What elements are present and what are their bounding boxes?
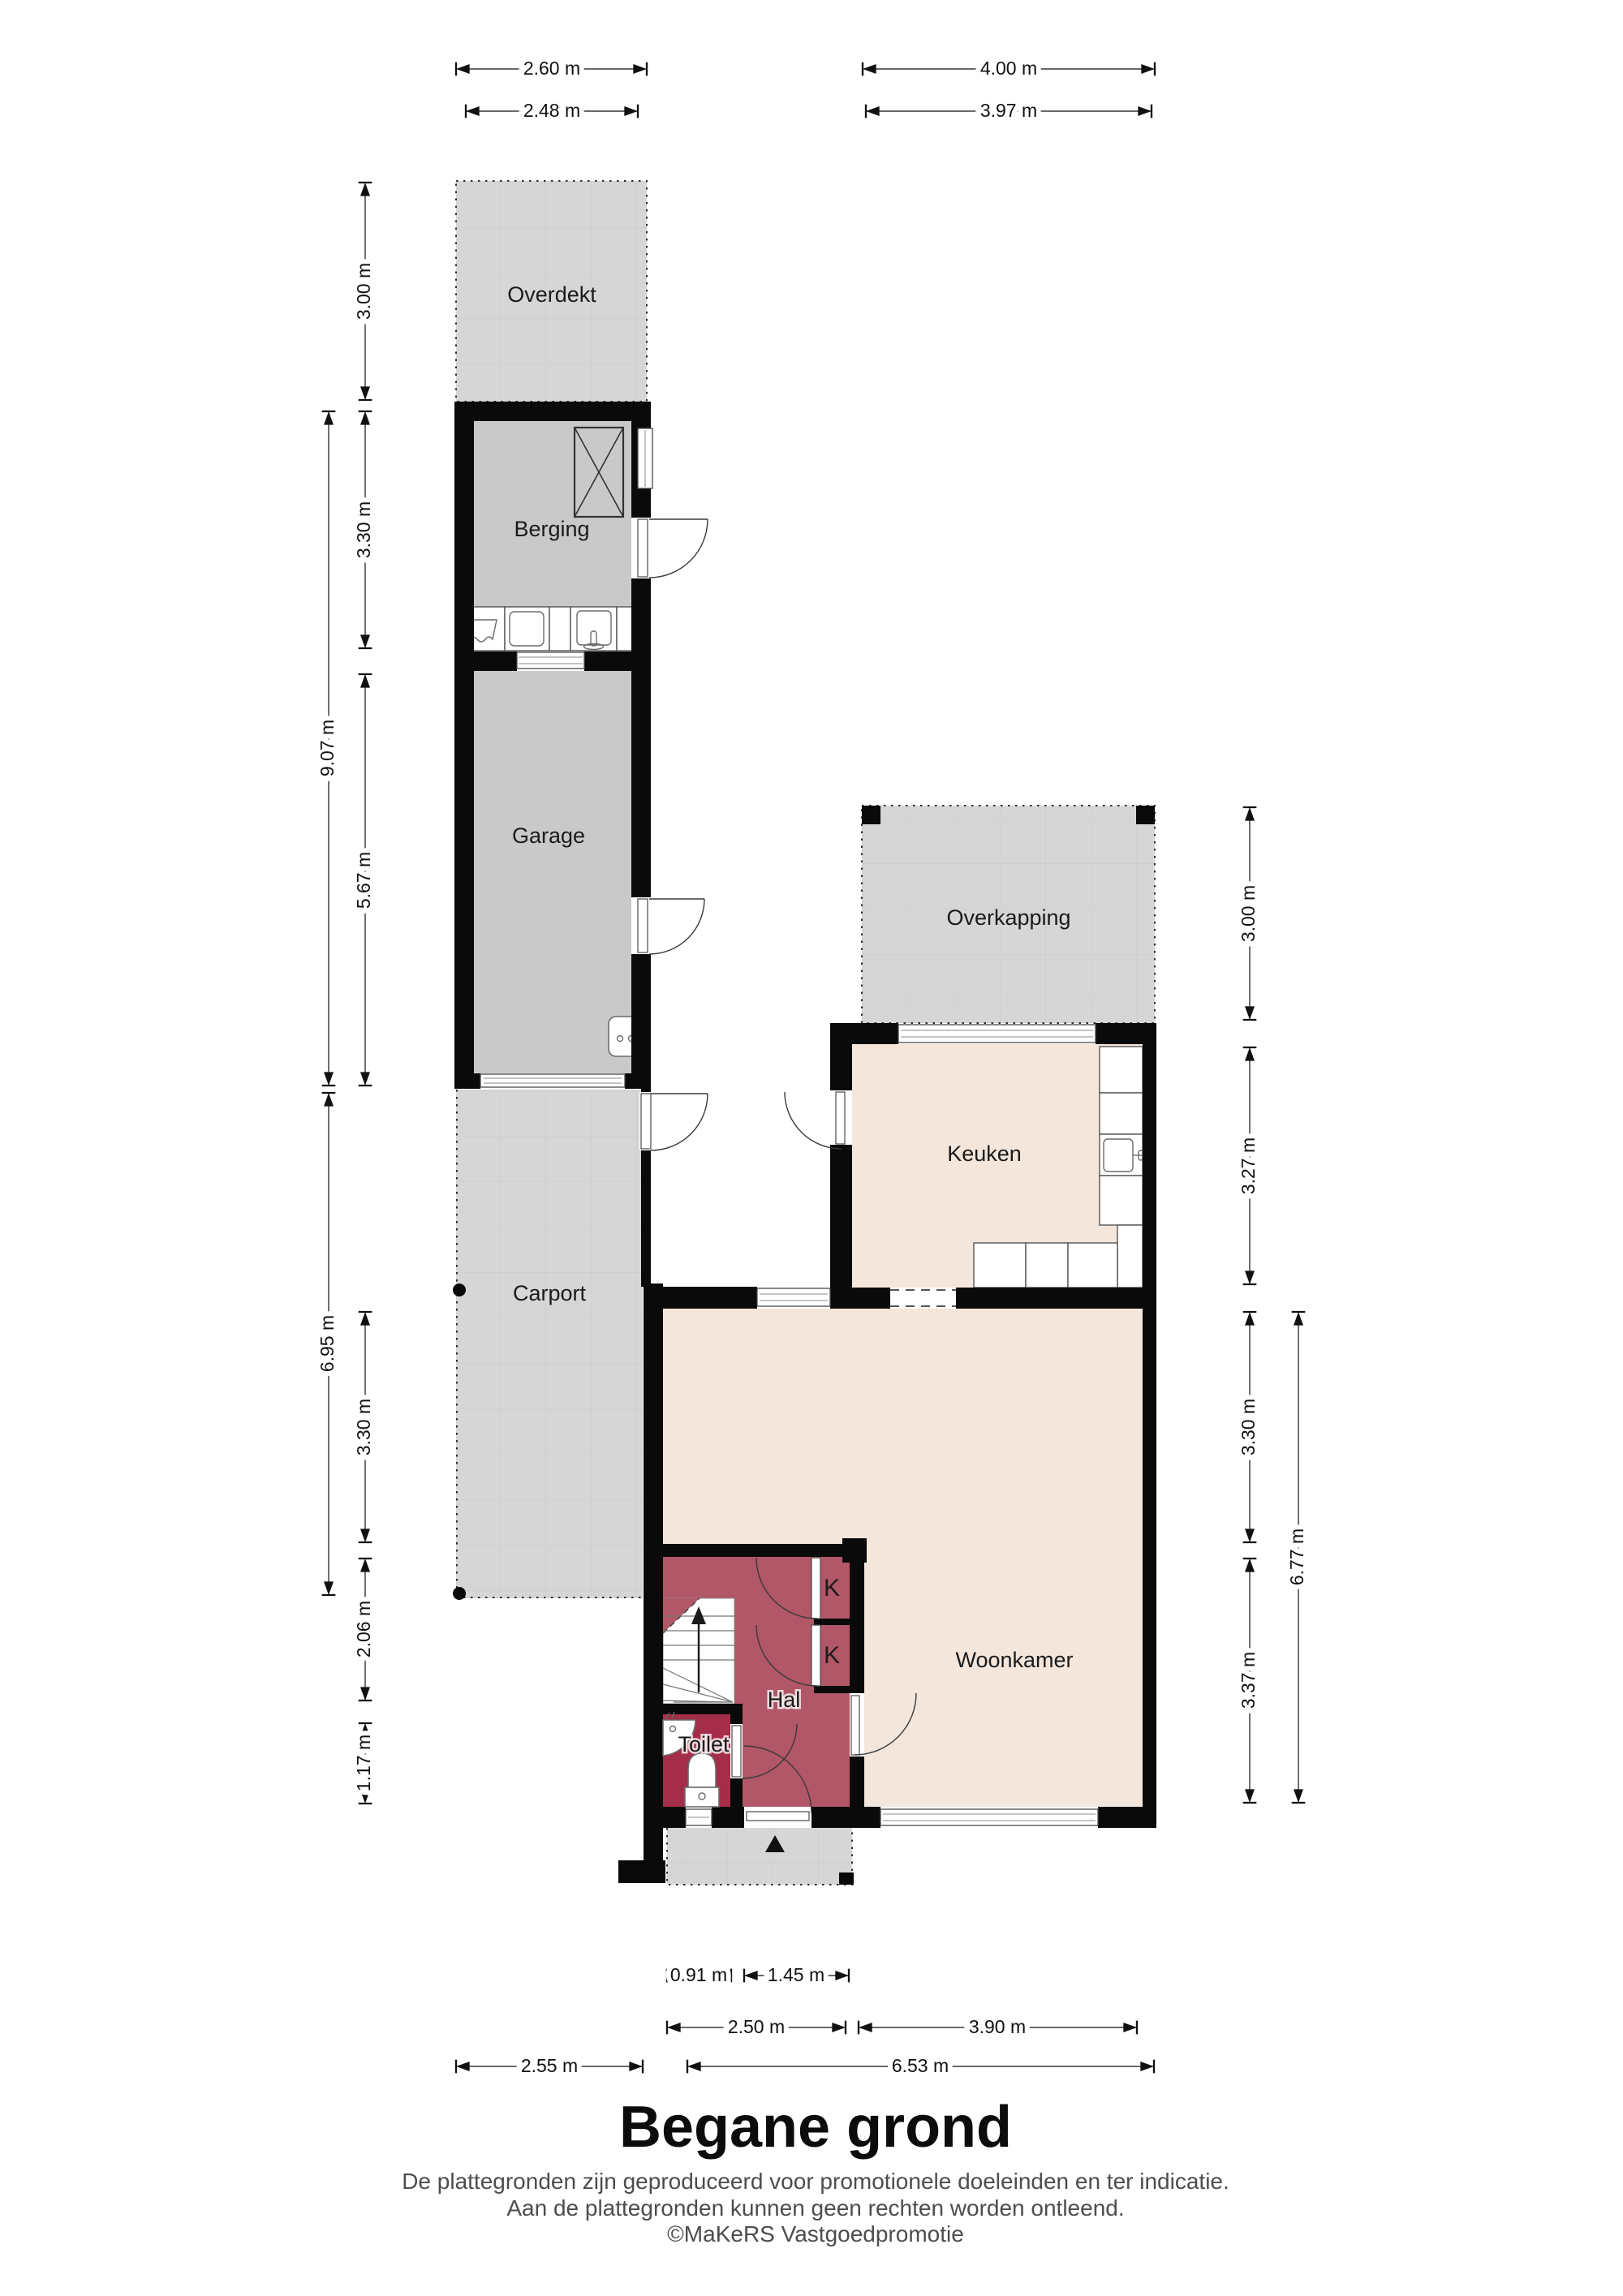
dim-right-woonkamer-upper: 3.30 m [1238,1312,1259,1542]
dim-right-woonkamer-lower: 3.37 m [1238,1559,1259,1803]
dim-top-overkapping: 4.00 m [863,58,1155,79]
keuken-label: Keuken [947,1142,1022,1166]
berging-label: Berging [514,517,589,541]
porch-post-left [618,1860,665,1883]
svg-text:6.53 m: 6.53 m [892,2055,949,2076]
garage-door [480,1074,625,1087]
svg-text:3.27 m: 3.27 m [1238,1137,1259,1194]
svg-text:2.06 m: 2.06 m [353,1601,374,1658]
svg-text:0.91 m: 0.91 m [670,1964,727,1985]
overkapping-post-right [1136,806,1155,824]
dim-right-woonkamer-total: 6.77 m [1286,1312,1307,1803]
svg-text:6.77 m: 6.77 m [1286,1529,1307,1585]
garage-label: Garage [512,823,585,848]
woonkamer-label: Woonkamer [955,1648,1073,1672]
zone-carport: Carport [453,1090,643,1600]
svg-text:3.30 m: 3.30 m [353,501,374,558]
wall-closet-separator-2 [814,1686,850,1693]
hal-label: Hal [768,1688,801,1712]
wall-hal-right-lower [850,1756,864,1807]
wall-house-right [1143,1023,1156,1828]
opening-keuken-woonkamer [890,1288,956,1309]
wall-bottom-3 [811,1807,880,1828]
svg-text:2.48 m: 2.48 m [523,100,580,121]
dim-left-berging: 3.30 m [353,411,374,648]
window-woonkamer-bottom [880,1809,1098,1825]
svg-text:2.60 m: 2.60 m [523,58,580,79]
wall-toilet-right-upper [730,1714,743,1724]
svg-text:1.45 m: 1.45 m [768,1964,824,1985]
dim-top-overkapping-inner: 3.97 m [866,100,1152,121]
dim-top-overdekt-inner: 2.48 m [466,100,638,121]
dim-left-garage: 5.67 m [353,674,374,1086]
dim-left-carport: 6.95 m [316,1093,338,1595]
svg-text:6.95 m: 6.95 m [316,1315,338,1372]
wall-strip-left [454,402,474,1089]
wall-bottom-1 [644,1807,686,1828]
svg-text:2.50 m: 2.50 m [728,2016,785,2037]
dim-bottom-hal-width: 2.50 m [667,2016,846,2037]
wall-keuken-bottom-right [956,1288,1156,1309]
wall-berging-garage-right [584,651,651,671]
window-berging-right [638,428,652,488]
wall-keuken-bottom-left [834,1288,890,1309]
page-title: Begane grond [619,2095,1012,2160]
wall-stairs-bottom [644,1704,743,1714]
door-passage-carport [639,1092,708,1150]
svg-text:3.90 m: 3.90 m [969,2016,1026,2037]
footer-line-1: De plattegronden zijn geproduceerd voor … [402,2169,1229,2194]
wall-closet-separator-1 [814,1619,850,1625]
door-garage-side [631,897,704,954]
carport-post-corner [453,1587,466,1600]
wall-berging-garage-left [454,651,517,671]
room-garage [474,671,631,1073]
wall-keuken-left-lower [830,1145,852,1287]
window-passage-woonkamer [757,1288,830,1306]
dim-right-overkapping: 3.00 m [1238,807,1259,1020]
svg-text:4.00 m: 4.00 m [980,58,1037,79]
wall-strip-right [631,402,651,1089]
zone-overkapping: Overkapping [862,806,1155,1023]
svg-text:9.07 m: 9.07 m [316,720,338,776]
wall-hal-top [644,1544,867,1557]
wall-passage-bottom-left [649,1287,757,1309]
svg-text:5.67 m: 5.67 m [353,852,374,909]
dim-left-hal: 2.06 m [353,1559,374,1701]
closet-top-label: K [824,1575,840,1602]
wall-house-left [644,1283,663,1860]
porch-grid [667,1828,852,1885]
svg-text:3.97 m: 3.97 m [980,100,1037,121]
window-keuken-top [898,1025,1096,1043]
toilet-icon [685,1753,719,1807]
footer-line-3: ©MaKeRS Vastgoedpromotie [667,2221,964,2247]
stairs-icon [663,1598,734,1704]
dim-bottom-house-width: 6.53 m [687,2055,1154,2076]
svg-text:3.00 m: 3.00 m [1238,885,1259,942]
porch-post-right [839,1872,854,1885]
svg-text:1.17 m: 1.17 m [353,1735,374,1791]
dim-top-overdekt: 2.60 m [456,58,647,79]
wall-berging-top [454,402,651,421]
door-keuken-back [785,1090,850,1149]
overdekt-label: Overdekt [507,282,596,307]
wall-garage-bottom-right [625,1073,651,1089]
dim-bottom-carport-width: 2.55 m [456,2055,643,2076]
dim-left-strip-total: 9.07 m [316,411,338,1086]
zone-overdekt: Overdekt [456,181,647,402]
toilet-label: Toilet [678,1732,730,1756]
room-berging [474,421,631,607]
dim-left-woonkamer-upper: 3.30 m [353,1312,374,1542]
svg-text:3.00 m: 3.00 m [353,263,374,320]
dim-left-toilet: 1.17 m [353,1723,374,1804]
berging-appliances [460,607,644,651]
window-toilet [686,1809,712,1825]
floor-plan: Overdekt Overkapping Carport [0,0,1623,2296]
wall-toilet-right-lower [730,1778,743,1807]
carport-post-mid [453,1283,466,1296]
carport-label: Carport [513,1281,587,1305]
dim-bottom-entrance-width: 1.45 m [744,1964,849,1985]
wall-closet-right [850,1555,864,1693]
overkapping-post-left [862,806,880,824]
overkapping-label: Overkapping [946,905,1070,930]
door-berging [631,518,708,578]
dim-bottom-woonkamer-width: 3.90 m [859,2016,1137,2037]
wall-keuken-top-left [830,1023,898,1044]
carport-grid [456,1090,643,1598]
footer-line-2: Aan de plattegronden kunnen geen rechten… [506,2195,1124,2221]
wall-garage-bottom-left [454,1073,480,1089]
dim-left-overdekt: 3.00 m [353,183,374,400]
svg-text:3.30 m: 3.30 m [1238,1399,1259,1455]
svg-text:2.55 m: 2.55 m [521,2055,578,2076]
wall-passage-left [641,1150,651,1287]
closet-bottom-label: K [824,1642,840,1669]
dim-right-keuken: 3.27 m [1238,1047,1259,1284]
wall-bottom-4 [1098,1807,1156,1828]
svg-text:3.37 m: 3.37 m [1238,1652,1259,1709]
svg-text:3.30 m: 3.30 m [353,1399,374,1455]
wall-bottom-2 [712,1807,744,1828]
window-berging-garage [517,652,584,669]
dim-bottom-toilet-width: 0.91 m [667,1964,731,1985]
